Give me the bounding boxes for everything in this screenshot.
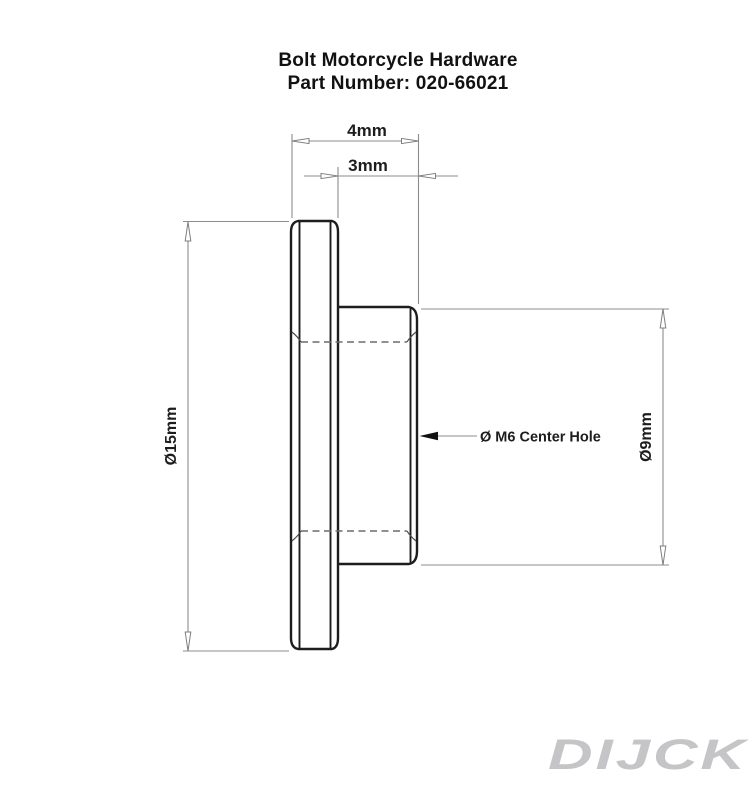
part-boss-outline [339,307,417,564]
arrowhead-up-icon [660,309,666,328]
dimension-label-3mm: 3mm [348,156,388,175]
arrowhead-down-icon [185,632,191,651]
arrowhead-right-icon [419,173,436,178]
center-hole-label: Ø M6 Center Hole [480,430,601,446]
arrowhead-down-icon [660,546,666,565]
hole-chamfer-arc [407,531,416,541]
dimension-boss-length: 3mm [304,156,458,218]
leader-arrowhead-icon [420,432,439,440]
boss-profile [339,307,417,564]
arrowhead-up-icon [185,222,191,241]
dimension-label-15mm: Ø15mm [163,407,180,466]
drawing-page: Bolt Motorcycle Hardware Part Number: 02… [0,0,753,800]
drawing-part-number: Part Number: 020-66021 [288,73,509,94]
watermark-logo: DIJCK [548,731,749,779]
dimension-label-9mm: Ø9mm [638,412,655,462]
arrowhead-right-icon [402,138,419,143]
dimension-label-4mm: 4mm [347,121,387,140]
hole-chamfer-arc [407,332,416,342]
part-flange-outline [291,221,338,649]
drawing-title: Bolt Motorcycle Hardware [278,50,517,71]
dimension-flange-diameter: Ø15mm [163,222,289,652]
dimension-overall-length: 4mm [292,121,419,304]
arrowhead-left-icon [292,138,309,143]
arrowhead-left-icon [321,173,338,178]
center-hole-hidden-lines [292,332,416,541]
technical-drawing-canvas: Bolt Motorcycle Hardware Part Number: 02… [0,0,753,800]
center-hole-callout: Ø M6 Center Hole [420,430,601,446]
